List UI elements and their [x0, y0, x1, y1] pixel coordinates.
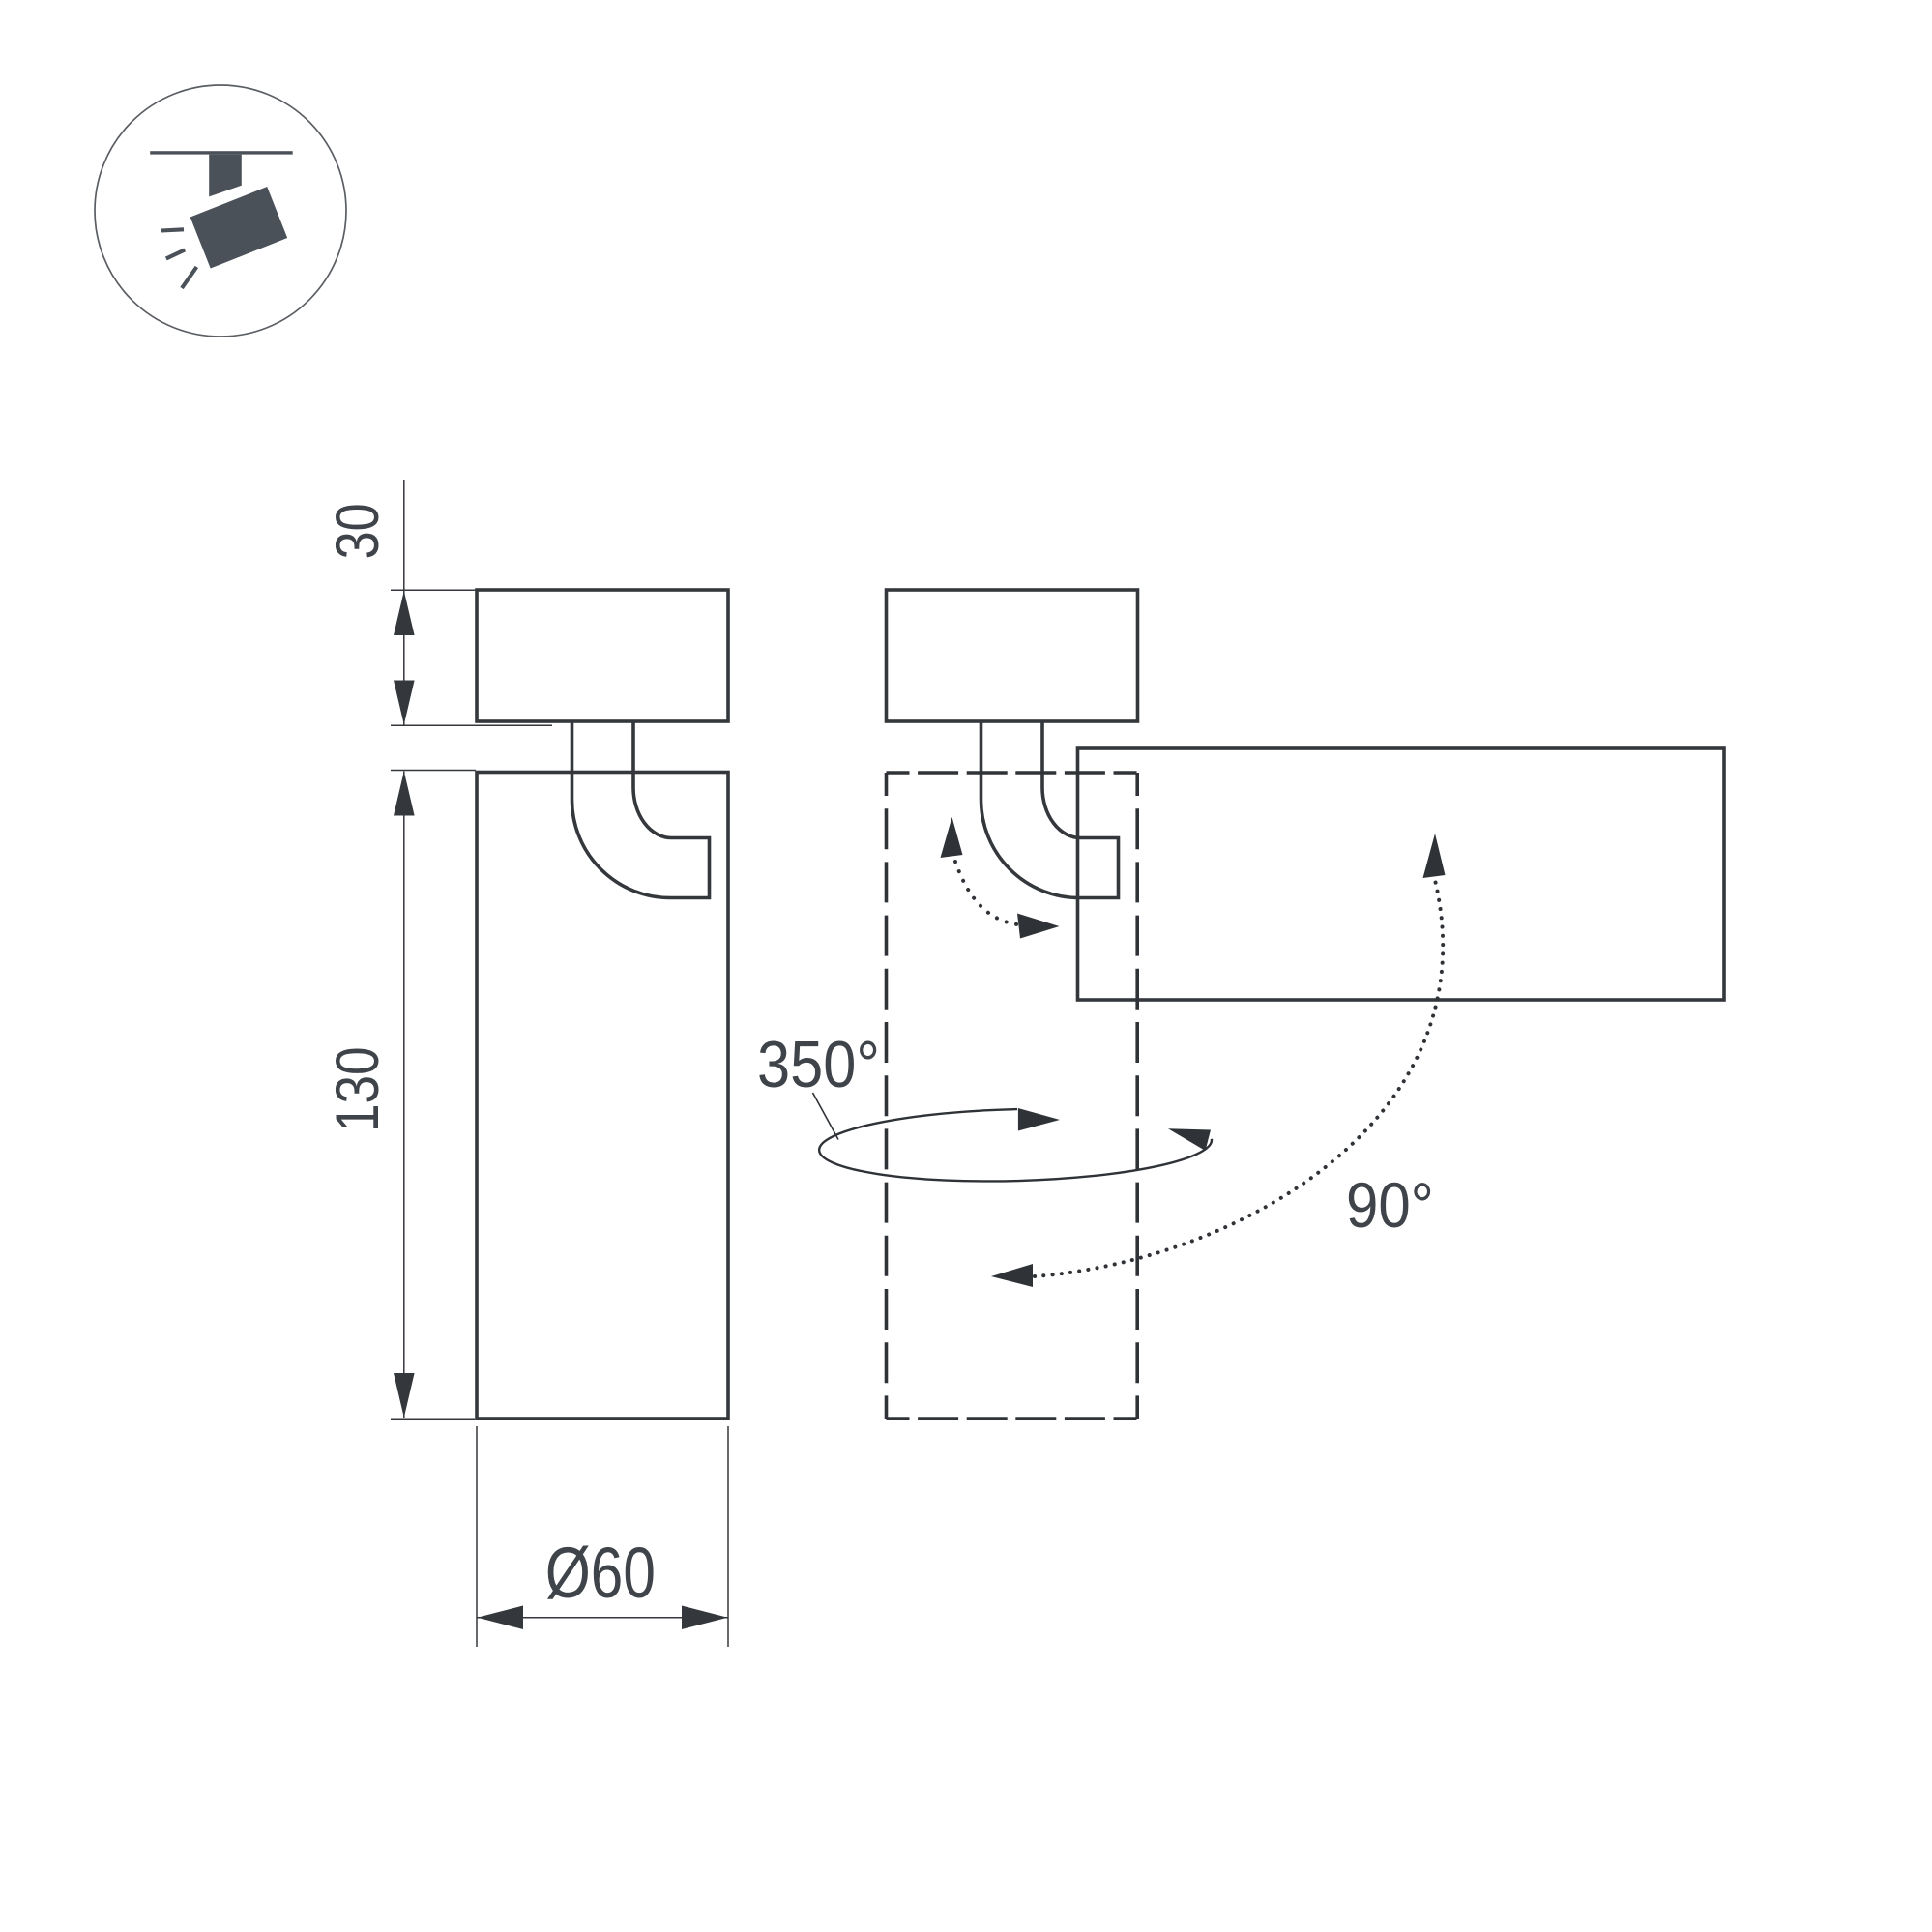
svg-text:130: 130 — [324, 1046, 392, 1132]
svg-text:350°: 350° — [757, 1027, 880, 1101]
svg-text:30: 30 — [325, 503, 393, 559]
svg-text:90°: 90° — [1346, 1170, 1434, 1241]
svg-text:Ø60: Ø60 — [545, 1534, 656, 1613]
